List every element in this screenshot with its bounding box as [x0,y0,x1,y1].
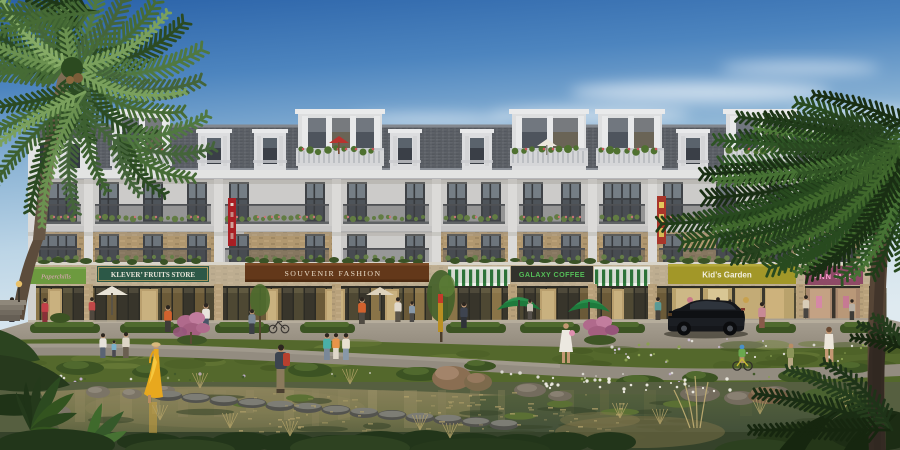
svg-text:GALAXY COFFEE: GALAXY COFFEE [519,270,585,279]
svg-text:SOUVENIR FASHION: SOUVENIR FASHION [285,269,382,278]
svg-text:Paperchills: Paperchills [40,274,71,281]
svg-text:KLEVER’ FRUITS STORE: KLEVER’ FRUITS STORE [111,271,195,279]
svg-text:Kid’s Garden: Kid’s Garden [702,271,752,280]
